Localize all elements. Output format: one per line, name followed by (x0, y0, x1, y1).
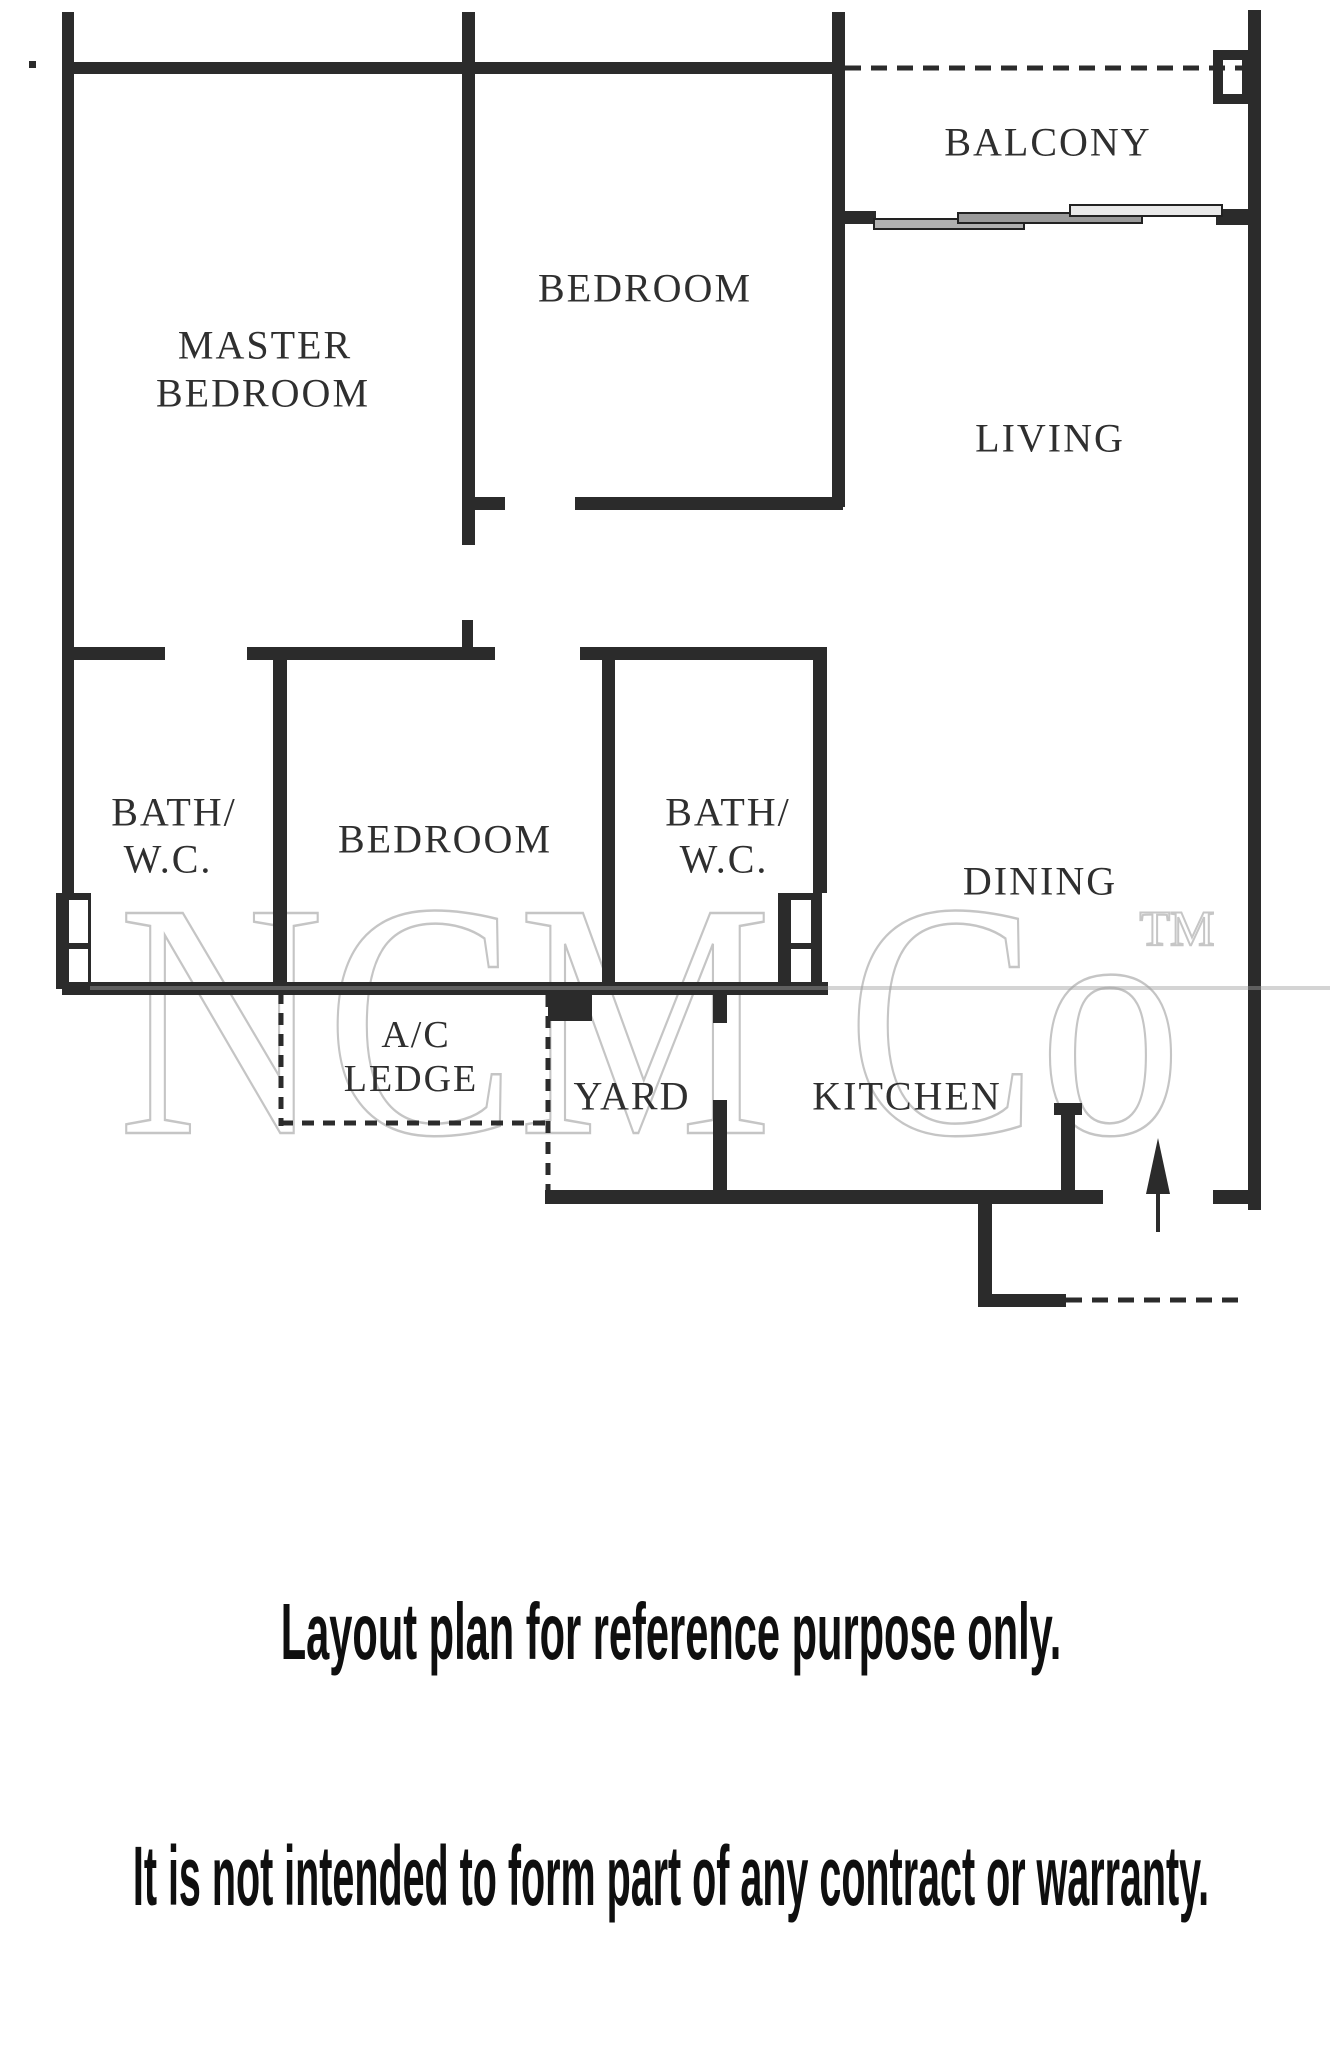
wall-kitchen-right (1061, 1103, 1075, 1200)
wall-bedroom-bottom (575, 497, 843, 510)
wall-entry-horizontal (978, 1294, 1066, 1307)
caption-no-contract: It is not intended to form part of any c… (132, 1828, 1208, 1925)
room-label-bath-right-line1: BATH/ (665, 789, 791, 836)
room-label-dining: DINING (963, 858, 1117, 905)
balcony-window (874, 205, 1222, 229)
wall-middle-c (580, 647, 825, 660)
room-label-ac-ledge-line1: A/C (381, 1013, 450, 1057)
wall-bedroom-living-divider (832, 12, 845, 507)
wall-bath-left-right (273, 647, 287, 985)
wall-yard-kitchen-1 (713, 985, 727, 1023)
room-label-bath-left-line2: W.C. (124, 836, 213, 883)
room-label-bath-right-line2: W.C. (680, 836, 769, 883)
wall-entry-vertical (978, 1204, 992, 1307)
room-label-ac-ledge-line2: LEDGE (344, 1057, 479, 1101)
room-label-master-bedroom-line1: MASTER (178, 322, 352, 369)
door-jamb (462, 497, 505, 510)
room-label-balcony: BALCONY (944, 119, 1151, 166)
wall-right (1248, 10, 1261, 1210)
room-label-living: LIVING (975, 415, 1125, 462)
wall-top (62, 62, 843, 74)
room-label-master-bedroom-line2: BEDROOM (156, 370, 370, 417)
dashed-lines (281, 68, 1248, 1300)
wall-bath-right-right (813, 647, 827, 893)
room-label-bedroom-middle: BEDROOM (338, 816, 552, 863)
wall-middle-a (62, 647, 165, 660)
wall-kitchen-right-jamb (1054, 1103, 1082, 1115)
wall-bath-right-left (602, 647, 615, 985)
room-label-bedroom-top: BEDROOM (538, 265, 752, 312)
wall-left (62, 12, 74, 893)
wall-bottom-right (1213, 1190, 1261, 1204)
room-label-bath-left-line1: BATH/ (111, 789, 237, 836)
room-label-kitchen: KITCHEN (812, 1073, 1002, 1120)
wall-bottom (545, 1190, 1103, 1204)
room-label-yard: YARD (574, 1073, 691, 1120)
wall-yard-kitchen-2 (713, 1100, 727, 1200)
caption-reference-only: Layout plan for reference purpose only. (280, 1586, 1061, 1678)
yard-door-jamb (548, 995, 592, 1021)
entrance-arrow-icon (1146, 1138, 1170, 1232)
wall-master-bedroom-divider (462, 12, 475, 545)
floor-plan-page: NCM Co TM (0, 0, 1341, 2048)
dot-top-left (29, 61, 36, 68)
window-jamb-left (838, 211, 876, 224)
